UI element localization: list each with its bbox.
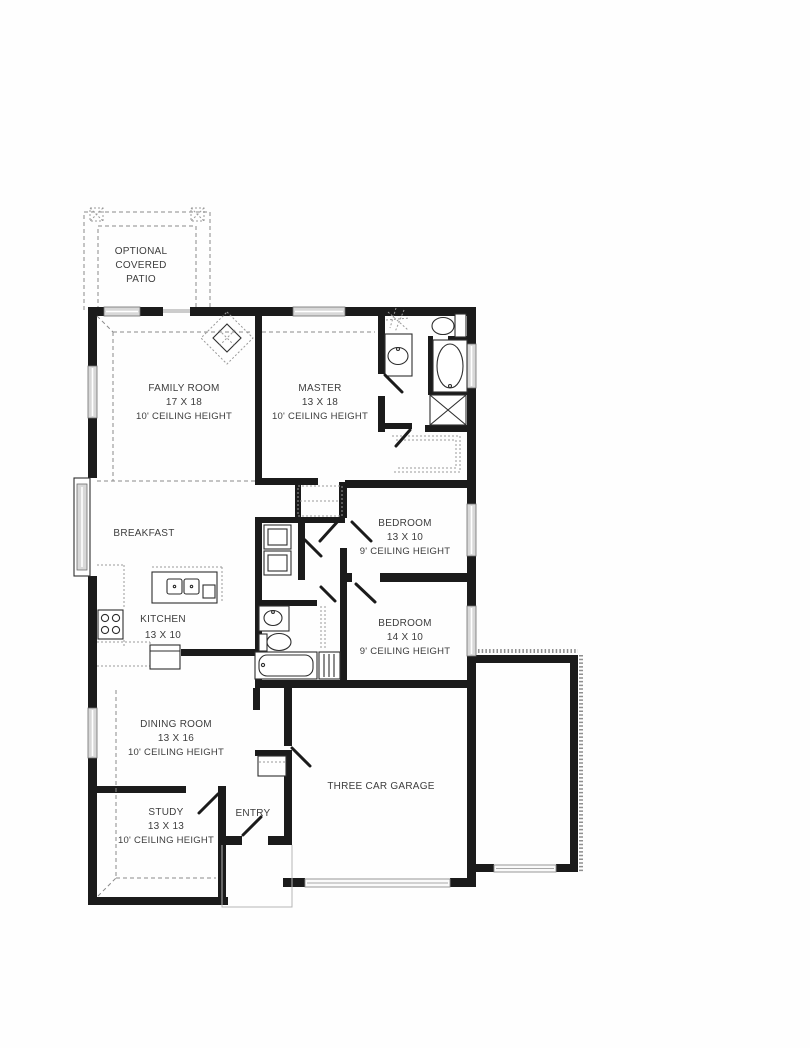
- entry-closet: [258, 756, 286, 776]
- door-icon: [320, 520, 339, 541]
- patio-label-line3: PATIO: [126, 274, 156, 285]
- window-icon: [88, 708, 97, 758]
- patio-label-line2: COVERED: [115, 260, 166, 271]
- garage-label: THREE CAR GARAGE: [327, 781, 434, 792]
- linen-closet-icon: [319, 652, 340, 679]
- bedroom1-label: BEDROOM: [378, 518, 431, 529]
- breakfast-label: BREAKFAST: [113, 528, 174, 539]
- door-icon: [243, 817, 261, 835]
- entry-label: ENTRY: [236, 808, 271, 819]
- dining-label: DINING ROOM: [140, 719, 212, 730]
- door-icon: [352, 522, 371, 541]
- floor-plan-page: OPTIONAL COVERED PATIO FAMILY ROOM 17 X …: [0, 0, 810, 1048]
- master-ceiling: 10' CEILING HEIGHT: [272, 411, 368, 422]
- garage-elements: [222, 845, 556, 907]
- window-icon: [293, 307, 345, 316]
- refrigerator-icon: [150, 645, 180, 669]
- patio-label-line1: OPTIONAL: [115, 246, 168, 257]
- hall-bath-fixtures: [255, 606, 340, 679]
- bedroom1-size: 13 X 10: [387, 532, 423, 543]
- family-room-size: 17 X 18: [166, 397, 202, 408]
- family-room-label: FAMILY ROOM: [148, 383, 219, 394]
- shower-icon: [430, 395, 466, 425]
- door-icon: [321, 587, 335, 601]
- hall-linen-closet: [298, 486, 342, 516]
- patio-door-sill: [163, 309, 190, 313]
- pocket-door: [321, 606, 325, 648]
- window-icon: [104, 307, 140, 316]
- vanity-sink-icon: [259, 606, 289, 631]
- utility-fixtures: [264, 525, 291, 575]
- door-icon: [385, 375, 402, 392]
- floor-plan-drawing: OPTIONAL COVERED PATIO FAMILY ROOM 17 X …: [0, 0, 810, 1048]
- bedroom1-ceiling: 9' CEILING HEIGHT: [360, 546, 451, 557]
- bathtub-icon: [255, 652, 317, 679]
- kitchen-island: [152, 567, 222, 603]
- cooktop-icon: [98, 610, 123, 639]
- garage-door-icon: [305, 879, 450, 887]
- door-icon: [396, 430, 410, 446]
- dining-ceiling: 10' CEILING HEIGHT: [128, 747, 224, 758]
- study-label: STUDY: [148, 807, 183, 818]
- washer-icon: [264, 525, 291, 549]
- door-icon: [292, 748, 310, 766]
- window-icon: [467, 344, 476, 388]
- dryer-icon: [264, 551, 291, 575]
- kitchen-size: 13 X 10: [145, 630, 181, 641]
- master-bath-fixtures: [385, 308, 467, 472]
- garage-door-icon: [494, 865, 556, 872]
- fireplace-icon: [201, 312, 253, 364]
- bedroom2-size: 14 X 10: [387, 632, 423, 643]
- window-icon: [467, 504, 476, 556]
- kitchen-label: KITCHEN: [140, 614, 186, 625]
- door-icon: [305, 540, 321, 556]
- master-size: 13 X 18: [302, 397, 338, 408]
- bedroom2-label: BEDROOM: [378, 618, 431, 629]
- front-porch: [222, 845, 292, 907]
- dining-size: 13 X 16: [158, 733, 194, 744]
- toilet-icon: [259, 634, 291, 652]
- master-label: MASTER: [298, 383, 341, 394]
- family-room-ceiling: 10' CEILING HEIGHT: [136, 411, 232, 422]
- toilet-icon: [432, 314, 466, 337]
- bedroom2-ceiling: 9' CEILING HEIGHT: [360, 646, 451, 657]
- door-icon: [356, 584, 375, 602]
- bathtub-icon: [433, 340, 467, 392]
- study-ceiling: 10' CEILING HEIGHT: [118, 835, 214, 846]
- window-icon: [467, 606, 476, 656]
- vanity-sink-icon: [385, 334, 412, 376]
- master-closet-shelves: [392, 436, 460, 472]
- door-icon: [199, 794, 218, 813]
- bay-window-icon: [74, 478, 90, 576]
- study-size: 13 X 13: [148, 821, 184, 832]
- window-icon: [88, 366, 97, 418]
